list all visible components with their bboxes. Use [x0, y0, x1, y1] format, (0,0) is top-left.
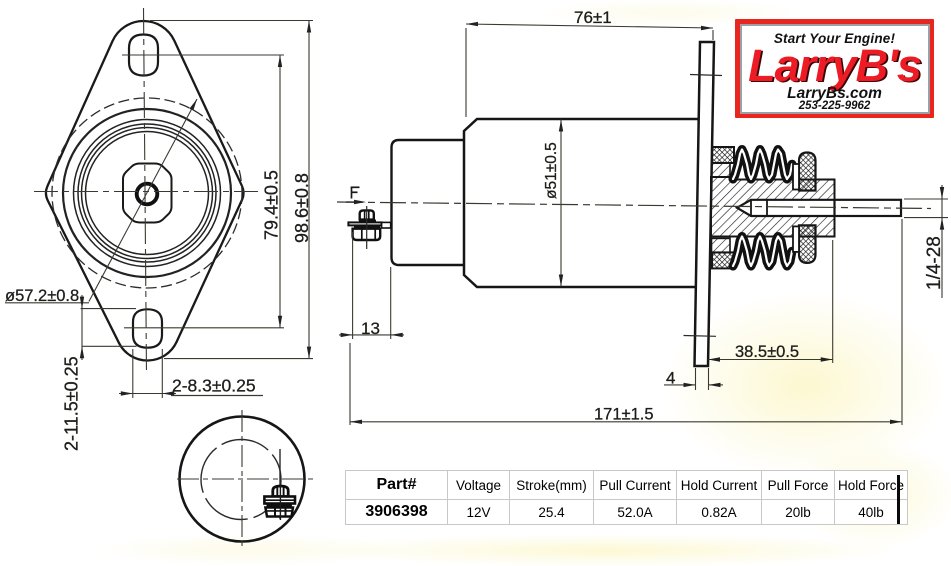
svg-text:ø51±0.5: ø51±0.5: [543, 142, 560, 199]
svg-text:38.5±0.5: 38.5±0.5: [735, 343, 799, 361]
svg-text:98.6±0.8: 98.6±0.8: [292, 173, 312, 243]
svg-text:171±1.5: 171±1.5: [594, 406, 654, 424]
svg-text:76±1: 76±1: [574, 8, 612, 27]
svg-text:13: 13: [361, 319, 380, 338]
svg-text:2-11.5±0.25: 2-11.5±0.25: [62, 356, 82, 451]
svg-text:79.4±0.5: 79.4±0.5: [262, 170, 282, 240]
svg-text:2-8.3±0.25: 2-8.3±0.25: [172, 376, 256, 396]
svg-text:1/4-28: 1/4-28: [924, 236, 945, 290]
svg-text:4: 4: [666, 369, 675, 388]
